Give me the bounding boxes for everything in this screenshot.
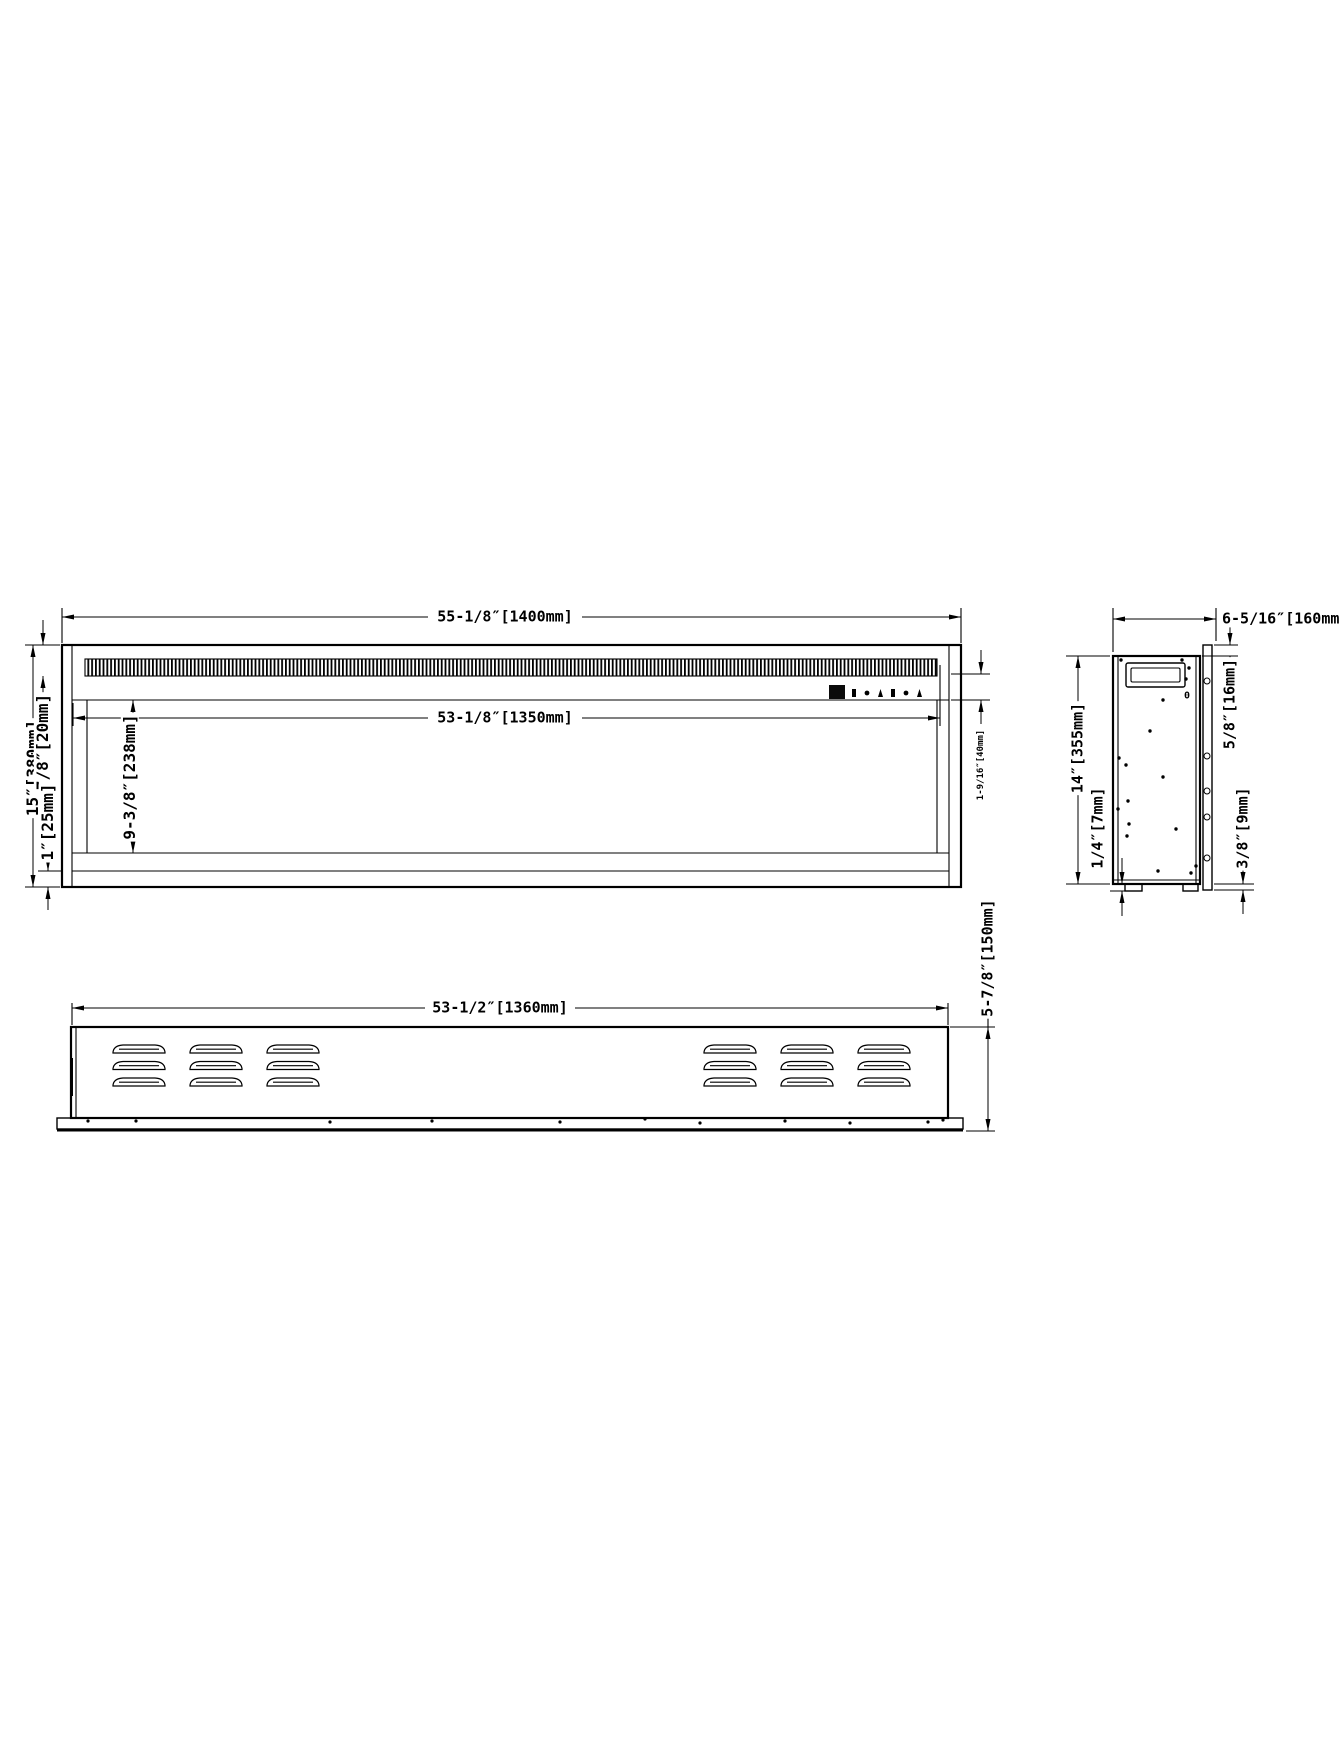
screw-dot xyxy=(86,1119,89,1122)
rivet-dot xyxy=(1126,799,1129,802)
rivet-dot xyxy=(1124,763,1127,766)
louver-vent xyxy=(704,1062,756,1070)
rivet-dot xyxy=(1119,658,1122,661)
dim-label-bottom-overall-depth: 5-7/8″[150mm] xyxy=(979,897,996,1018)
dim-label-front-control-height: 1-9/16″[40mm] xyxy=(976,728,986,802)
louver-vent xyxy=(190,1045,242,1053)
dim-label-front-opening-width: 53-1/8″[1350mm] xyxy=(435,709,574,726)
louver-vents xyxy=(113,1045,910,1086)
louver-vent xyxy=(858,1078,910,1086)
louver-vent xyxy=(267,1078,319,1086)
dim-label-side-overall-depth: 6-5/16″[160mm] xyxy=(1220,610,1340,627)
rivet-dot xyxy=(1117,756,1120,759)
dim-front-control-height xyxy=(951,650,990,724)
louver-vent xyxy=(858,1045,910,1053)
front-outline xyxy=(62,645,961,887)
front-view xyxy=(25,608,990,910)
rivet-dot xyxy=(1161,698,1164,701)
louver-vent xyxy=(781,1078,833,1086)
louver-vent xyxy=(190,1078,242,1086)
louver-vent xyxy=(781,1062,833,1070)
bottom-body-outline xyxy=(71,1027,948,1118)
dim-label-front-bottom-frame: 1″[25mm] xyxy=(39,781,57,862)
dim-label-front-opening-height: 9-3/8″[238mm] xyxy=(121,712,139,841)
dim-label-bottom-body-width: 53-1/2″[1360mm] xyxy=(430,999,569,1016)
dim-label-front-overall-width: 55-1/8″[1400mm] xyxy=(435,608,574,625)
control-button-icon xyxy=(852,689,856,697)
screw-dot xyxy=(848,1121,851,1124)
dim-label-front-grille-height: 7/8″[20mm] xyxy=(34,692,52,792)
rivet-dot xyxy=(1184,677,1187,680)
screw-dot xyxy=(783,1119,786,1122)
screw-dot xyxy=(328,1120,331,1123)
dim-label-side-overall-height: 14″[355mm] xyxy=(1069,701,1086,795)
louver-vent xyxy=(113,1078,165,1086)
louver-vent xyxy=(190,1062,242,1070)
louver-vent xyxy=(267,1045,319,1053)
screw-dot xyxy=(941,1118,944,1121)
control-button-icon xyxy=(891,689,895,697)
rivet-dot xyxy=(1116,807,1119,810)
drawing-sheet: 55-1/8″[1400mm] 53-1/8″[1350mm] 15″[380m… xyxy=(0,0,1340,1753)
rivet-dot xyxy=(1180,658,1183,661)
louver-vent xyxy=(267,1062,319,1070)
flange-hole xyxy=(1204,753,1210,759)
control-button-icon xyxy=(865,691,870,696)
rivet-dot xyxy=(1156,869,1159,872)
control-button-icon xyxy=(917,689,922,697)
control-display xyxy=(829,685,845,699)
louver-vent xyxy=(113,1062,165,1070)
louver-vent xyxy=(704,1078,756,1086)
vent-port xyxy=(1126,663,1185,687)
rivet-dot xyxy=(1174,827,1177,830)
rivet-dot xyxy=(1127,822,1130,825)
flange-hole xyxy=(1204,814,1210,820)
screw-dot xyxy=(430,1119,433,1122)
flange-hole xyxy=(1204,855,1210,861)
flange-hole xyxy=(1204,678,1210,684)
louver-vent xyxy=(858,1062,910,1070)
screw-dot xyxy=(558,1120,561,1123)
control-panel-buttons xyxy=(852,689,922,697)
rivet-dot xyxy=(1187,666,1190,669)
control-button-icon xyxy=(904,691,909,696)
louver-vent xyxy=(113,1045,165,1053)
control-button-icon xyxy=(878,689,883,697)
louver-vent xyxy=(704,1045,756,1053)
rivet-dot xyxy=(1148,729,1151,732)
dim-label-side-foot-height: 1/4″[7mm] xyxy=(1089,785,1106,870)
rivet-dot xyxy=(1161,775,1164,778)
bottom-flange xyxy=(57,1118,963,1129)
flange-hole xyxy=(1204,788,1210,794)
dim-label-side-flange-depth: 5/8″[16mm] xyxy=(1221,657,1238,751)
screw-dot xyxy=(134,1119,137,1122)
side-port-marking: 0 xyxy=(1182,690,1192,702)
dim-side-overall-depth xyxy=(1113,608,1216,652)
rivet-dot xyxy=(1125,834,1128,837)
drawing-linework xyxy=(0,0,1340,1753)
dim-label-side-flange-overhang: 3/8″[9mm] xyxy=(1234,785,1251,870)
screw-dot xyxy=(698,1121,701,1124)
screw-dot xyxy=(926,1120,929,1123)
rivet-dot xyxy=(1189,871,1192,874)
screw-dot xyxy=(643,1117,646,1120)
heater-grille xyxy=(85,659,937,676)
louver-vent xyxy=(781,1045,833,1053)
rivet-dot xyxy=(1194,864,1197,867)
